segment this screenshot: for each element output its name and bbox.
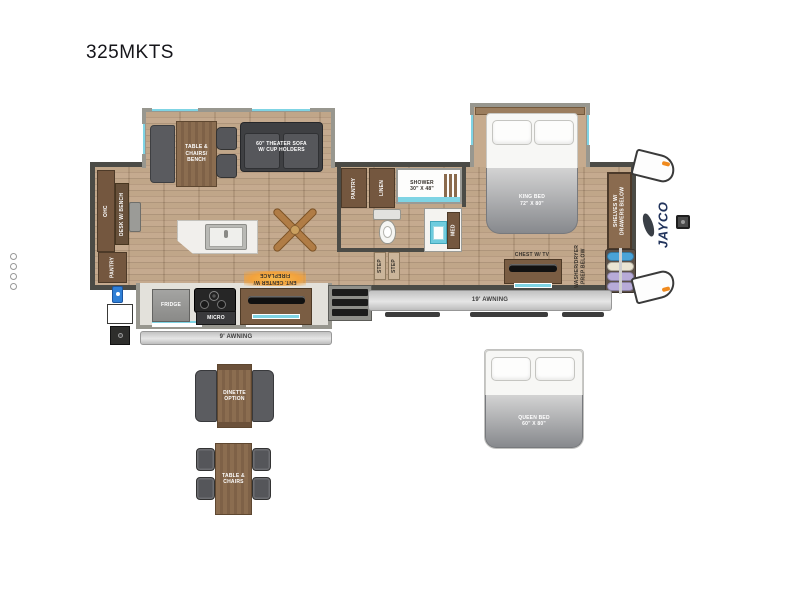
- shower-door-slat: [449, 174, 452, 199]
- window-sill: [514, 283, 552, 288]
- king-bed-label: KING BED 72" X 80": [487, 168, 577, 233]
- dinette-option: DINETTE OPTION: [217, 364, 252, 428]
- dining-bench: [150, 125, 175, 183]
- linen-closet: LINEN: [369, 168, 395, 208]
- medicine-cabinet: MED: [447, 212, 460, 249]
- entry-steps: [328, 285, 372, 321]
- tv-icon: [248, 296, 305, 304]
- toilet-tank: [373, 209, 401, 220]
- queen-bed-label: QUEEN BED 60" X 80": [486, 395, 582, 447]
- refrigerator: FRIDGE: [152, 289, 190, 322]
- option-chair: [252, 448, 271, 471]
- theater-sofa: 60" THEATER SOFA W/ CUP HOLDERS: [240, 122, 323, 172]
- front-closet: SHELVES W/ DRAWERS BELOW: [607, 172, 632, 250]
- burner-icon: [217, 300, 226, 309]
- bath-pantry: PANTRY: [341, 168, 367, 208]
- rear-entry-step: [107, 304, 133, 324]
- window: [467, 115, 473, 145]
- entertainment-center: [240, 288, 312, 325]
- tv-icon: [509, 264, 557, 272]
- window-sill: [252, 314, 300, 319]
- shower: SHOWER 30" X 48": [396, 168, 462, 204]
- dinette-bench: [195, 370, 217, 422]
- rear-pantry: PANTRY: [98, 252, 127, 283]
- theater-sofa-label: 60" THEATER SOFA W/ CUP HOLDERS: [241, 123, 322, 171]
- option-chair: [252, 477, 271, 500]
- ceiling-fan-icon: [268, 203, 322, 257]
- handle-dot: [116, 292, 120, 296]
- window: [252, 105, 310, 111]
- fan-hub: [290, 225, 300, 235]
- pillow: [492, 120, 532, 145]
- microwave: MICRO: [196, 311, 236, 325]
- fireplace: ENT. CENTER W/ FIREPLACE: [244, 271, 306, 286]
- marker-light-icon: [662, 161, 671, 167]
- bath-wall: [462, 167, 466, 207]
- chest-tv-label: CHEST W/ TV: [498, 251, 566, 259]
- shower-door-slat: [454, 174, 457, 199]
- window: [587, 115, 593, 145]
- option-chair: [196, 477, 215, 500]
- pillow: [535, 357, 575, 381]
- table-chairs-bench: TABLE & CHAIRS/ BENCH: [176, 121, 217, 187]
- overhead-cabinet: OHC: [97, 170, 115, 252]
- step-tread: [332, 289, 368, 296]
- step: STEP: [374, 252, 386, 280]
- marker-light-icon: [662, 286, 671, 292]
- dining-chair: [216, 127, 237, 150]
- tank-cap: [10, 263, 17, 270]
- desk-bench-seat: [129, 202, 141, 232]
- plan-title: 325MKTS: [86, 42, 174, 64]
- tank-cap: [10, 283, 17, 290]
- pillow: [534, 120, 574, 145]
- step: STEP: [388, 252, 400, 280]
- cooktop: [194, 288, 236, 313]
- awning-shadow: [385, 312, 440, 317]
- tank-rod: [619, 248, 622, 294]
- rear-entry-step: [110, 326, 130, 345]
- step-mount-icon: [118, 333, 123, 338]
- floorplan-screenshot: 325MKTS TABLE & CHAIRS/ BENCH 60" THEATE…: [0, 0, 800, 600]
- awning-shadow: [562, 312, 604, 317]
- dinette-option-label: DINETTE OPTION: [218, 365, 251, 427]
- washer-dryer-prep: WASHER/DRYER PREP BELOW: [571, 235, 590, 297]
- window: [139, 124, 145, 154]
- grab-handle: [112, 286, 123, 303]
- table-chairs-option: TABLE & CHAIRS: [215, 443, 252, 515]
- faucet-icon: [224, 230, 228, 238]
- step-tread: [332, 309, 368, 316]
- burner-icon: [200, 300, 209, 309]
- hitch-pin-icon: [681, 220, 685, 224]
- brand-logo: JAYCO: [650, 196, 678, 254]
- awning-9ft: 9' AWNING: [140, 331, 332, 345]
- step-tread: [332, 299, 368, 306]
- awning-19ft: 19' AWNING: [368, 290, 612, 311]
- front-cap: [630, 268, 677, 304]
- dining-chair: [216, 154, 237, 178]
- shower-threshold: [398, 197, 460, 202]
- king-bed: KING BED 72" X 80": [486, 168, 578, 234]
- tank-cap: [10, 273, 17, 280]
- tank-cap: [10, 253, 17, 260]
- vanity-basin: [433, 226, 444, 240]
- dinette-bench: [252, 370, 274, 422]
- queen-bed: QUEEN BED 60" X 80": [485, 395, 583, 448]
- pillow: [491, 357, 531, 381]
- shower-label: SHOWER 30" X 48": [400, 174, 444, 198]
- front-cap: [630, 148, 677, 184]
- awning-shadow: [470, 312, 548, 317]
- hitch-coupler: [676, 215, 690, 229]
- option-chair: [196, 448, 215, 471]
- desk-with-bench: DESK W/ BENCH: [115, 183, 129, 245]
- shower-door-slat: [444, 174, 447, 199]
- toilet-seat: [383, 226, 392, 238]
- window: [152, 105, 198, 111]
- stove-knob-icon: [209, 291, 219, 301]
